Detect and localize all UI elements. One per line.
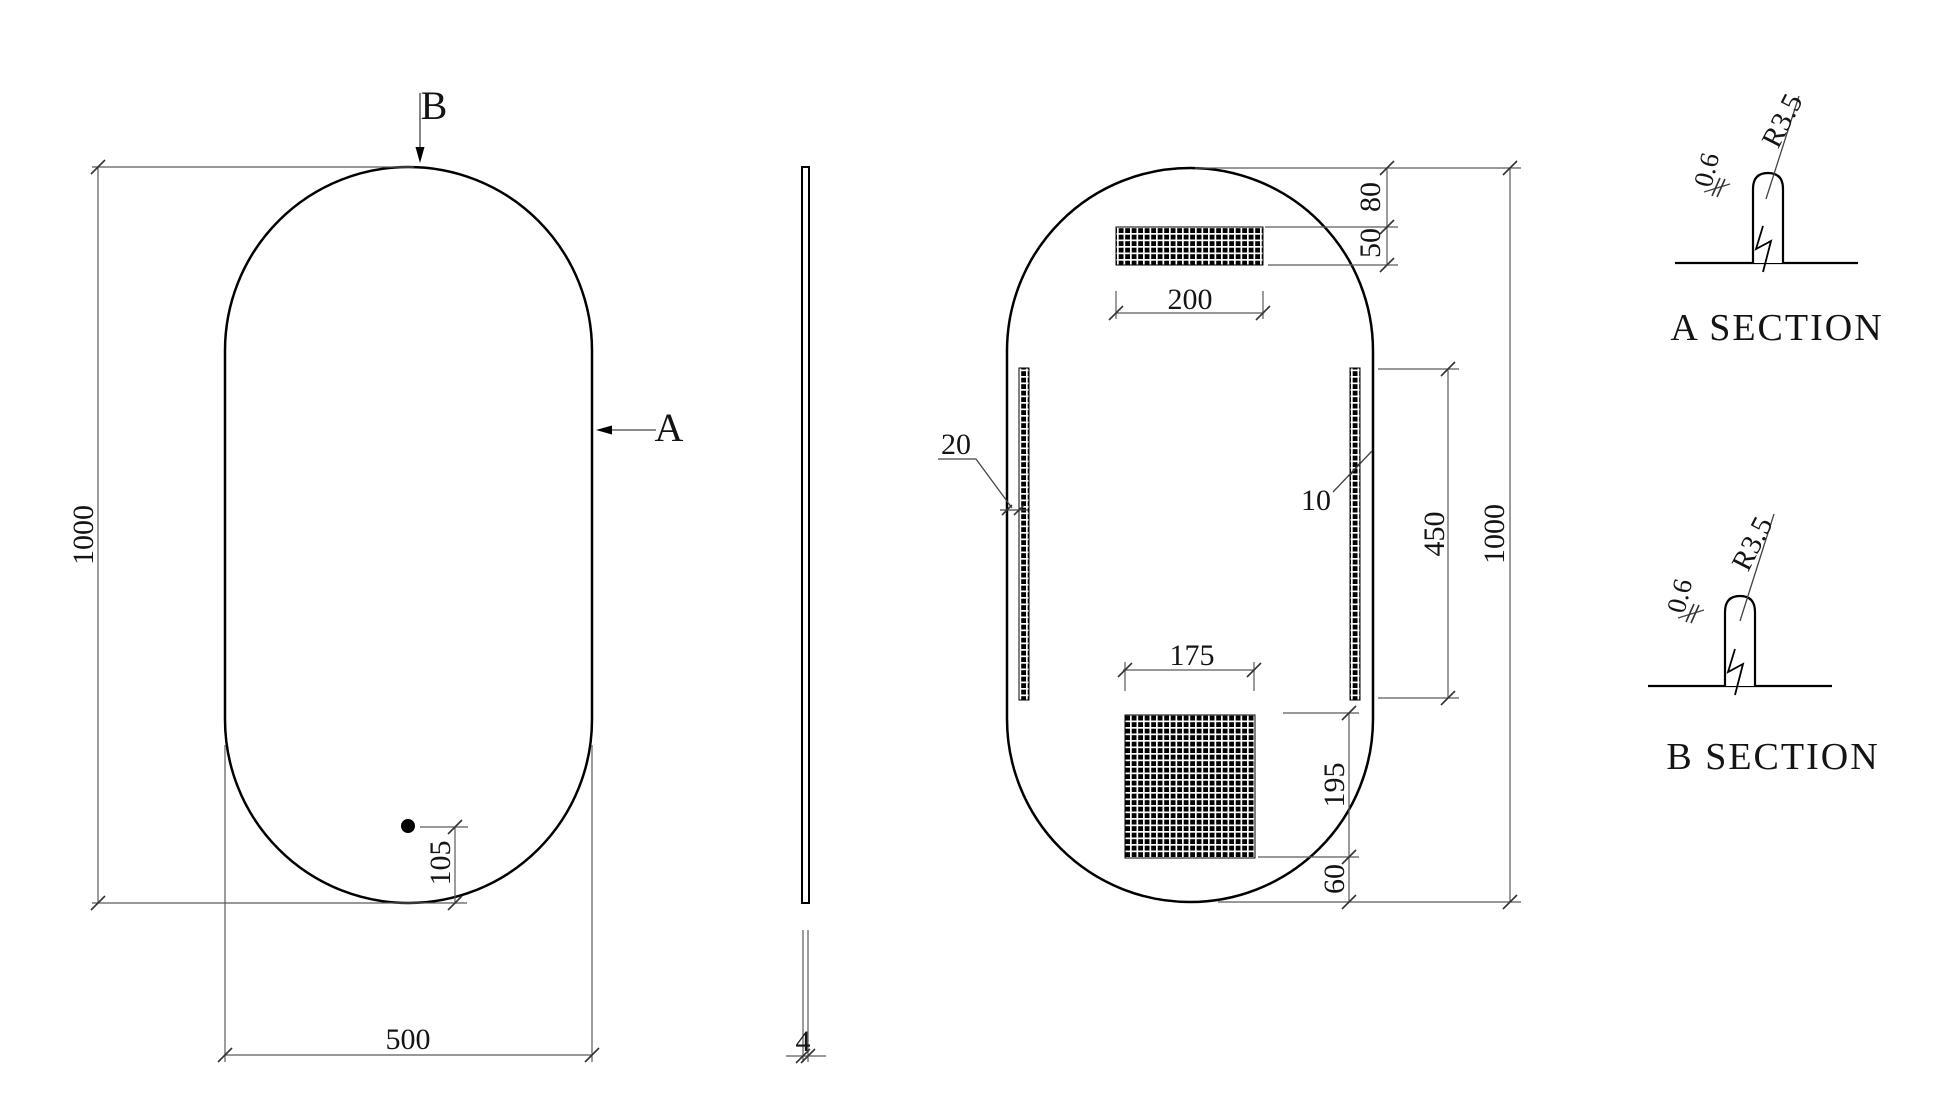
dim-text-top-pad-height: 50 [1356,228,1386,258]
dim-text-front-width: 500 [386,1025,431,1055]
bottom-hatch-pad [1125,715,1255,858]
front-view [91,93,656,1062]
dim-text-top-pad-width: 200 [1168,285,1213,315]
dim-text-bottom-offset: 60 [1320,864,1350,894]
dim-text-back-height: 1000 [1480,504,1510,564]
dim-text-strip-width: 10 [1301,486,1331,516]
left-led-strip [1019,368,1029,700]
section-b-arrowhead [416,147,425,163]
mirror-side-outline [802,167,809,903]
section-b-title: B SECTION [1666,738,1879,776]
section-a-title: A SECTION [1670,309,1883,347]
section-b-label: B [421,86,448,126]
technical-drawing-sheet: B A 1000 500 105 4 80 50 200 20 10 450 1… [0,0,1946,1101]
mirror-front-outline [225,167,592,903]
dim-text-edge-gap: 20 [941,430,971,460]
side-view [786,167,826,1063]
dim-text-top-offset: 80 [1356,182,1386,212]
dim-text-bottom-pad-width: 175 [1170,641,1215,671]
drawing-linework [0,0,1946,1101]
dim-text-bottom-pad-height: 195 [1320,763,1350,808]
right-led-strip [1350,368,1360,700]
dim-text-front-height: 1000 [69,505,99,565]
section-a-arrowhead [596,426,612,435]
top-hatch-pad [1116,227,1263,265]
section-a-label: A [655,408,684,448]
dim-text-sensor-offset: 105 [426,841,456,886]
dim-text-thickness: 4 [796,1027,811,1057]
touch-sensor-dot [401,819,415,833]
dim-text-strip-length: 450 [1420,512,1450,557]
